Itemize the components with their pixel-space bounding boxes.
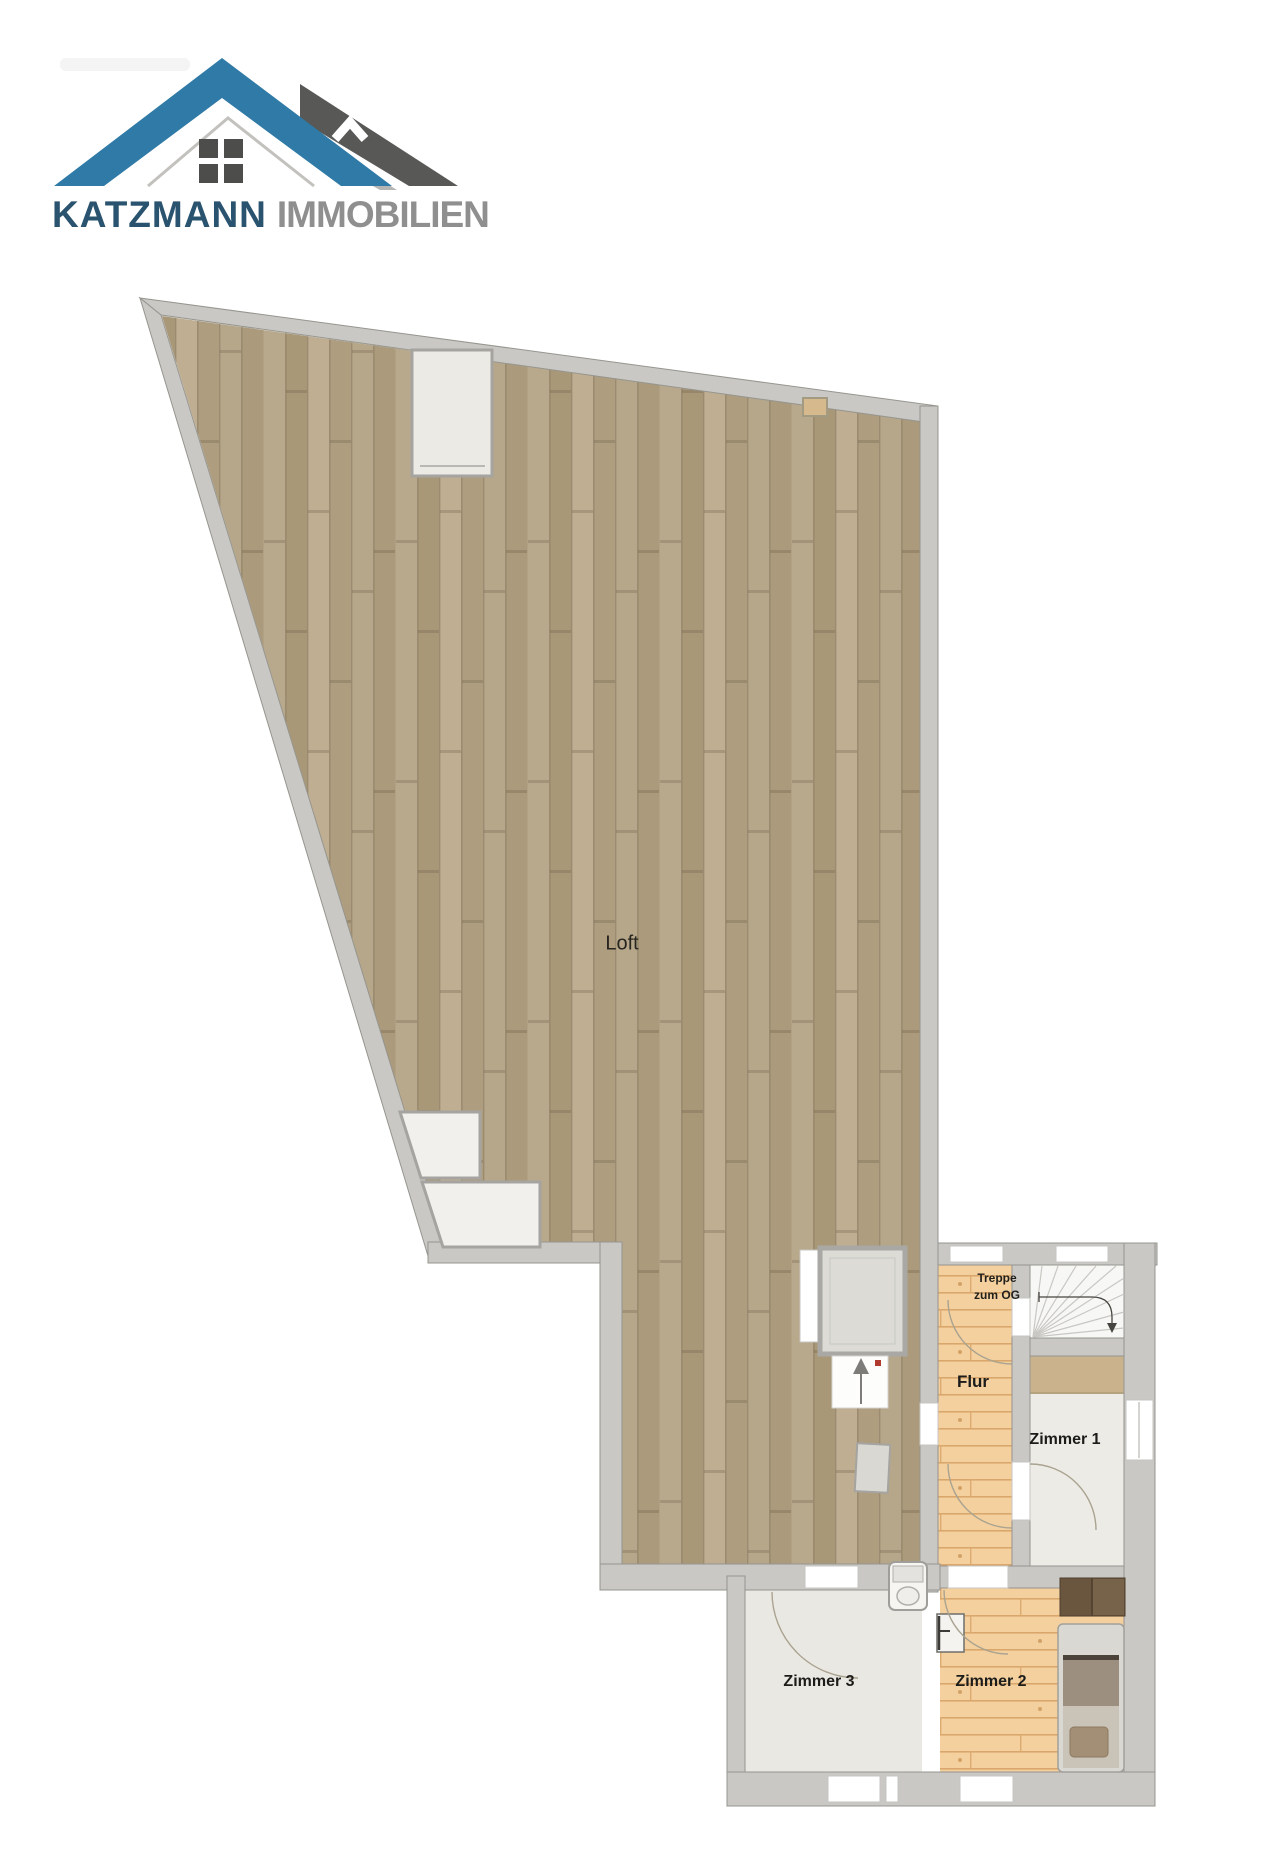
dormer-alcove-lower — [422, 1182, 540, 1247]
red-marker-dot — [875, 1360, 881, 1366]
zimmer2-door-gap — [948, 1566, 1008, 1588]
bed-headboard-line — [1063, 1655, 1119, 1660]
stairs-note-line2: zum OG — [974, 1288, 1020, 1302]
window-above-stairs — [1056, 1246, 1108, 1262]
brand-suffix: IMMOBILIEN — [277, 194, 489, 235]
zimmer2-bottom-window — [960, 1776, 1013, 1802]
brand-line: KATZMANNIMMOBILIEN — [52, 194, 489, 236]
room-label-loft: Loft — [605, 933, 638, 956]
section-bottom-wall — [727, 1772, 1155, 1806]
zimmer3-bottom-window — [828, 1776, 880, 1802]
zimmer3-door-gap — [805, 1566, 858, 1588]
bed — [1058, 1624, 1124, 1772]
zimmer1-door-gap — [1012, 1462, 1030, 1520]
room-label-zimmer1: Zimmer 1 — [1029, 1431, 1100, 1449]
stairs-note-line1: Treppe — [977, 1271, 1016, 1285]
zimmer1-tan-band — [1030, 1356, 1124, 1394]
wardrobe — [1060, 1578, 1125, 1616]
stairwell-bottom-wall — [1030, 1338, 1124, 1356]
window-top-left — [950, 1246, 1003, 1262]
brand-name: KATZMANN — [52, 194, 267, 235]
logo-smudge-artifact — [60, 58, 190, 71]
floorplan-drawing — [0, 0, 1280, 1849]
room-label-zimmer2: Zimmer 2 — [955, 1673, 1026, 1691]
loft-left-vertical-wall — [600, 1242, 622, 1590]
loft-steps-box — [832, 1356, 888, 1408]
top-wall-niche — [803, 398, 827, 416]
pillar-box — [855, 1443, 890, 1493]
bed-blanket — [1063, 1660, 1119, 1706]
glass-door — [820, 1248, 905, 1354]
bed-pillow — [1070, 1727, 1108, 1757]
toilet-fixture — [889, 1562, 927, 1610]
room-label-zimmer3: Zimmer 3 — [783, 1673, 854, 1691]
zimmer3-bottom-window-small — [886, 1776, 898, 1802]
room-label-flur: Flur — [957, 1372, 989, 1392]
loft-floor — [162, 316, 920, 1564]
floorplan-page: KATZMANNIMMOBILIEN Loft Treppe zum OG Fl… — [0, 0, 1280, 1849]
section-right-wall — [1124, 1243, 1155, 1806]
window-icon — [199, 139, 243, 183]
chimney-alcove — [412, 350, 492, 476]
stairwell-door-gap — [1012, 1298, 1030, 1336]
zimmer1-tan-band-edge — [1030, 1392, 1124, 1394]
loft-flur-door-gap — [920, 1403, 938, 1445]
glass-door-side-panel — [800, 1250, 820, 1342]
